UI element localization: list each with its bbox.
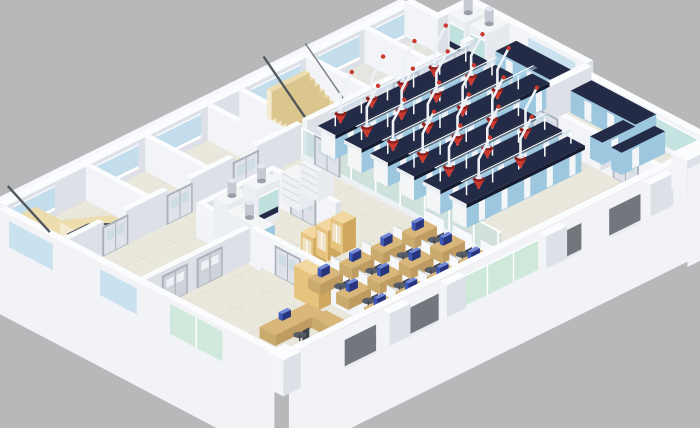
isometric-lab-floorplan [0, 0, 700, 428]
floorplan-render [0, 0, 700, 428]
